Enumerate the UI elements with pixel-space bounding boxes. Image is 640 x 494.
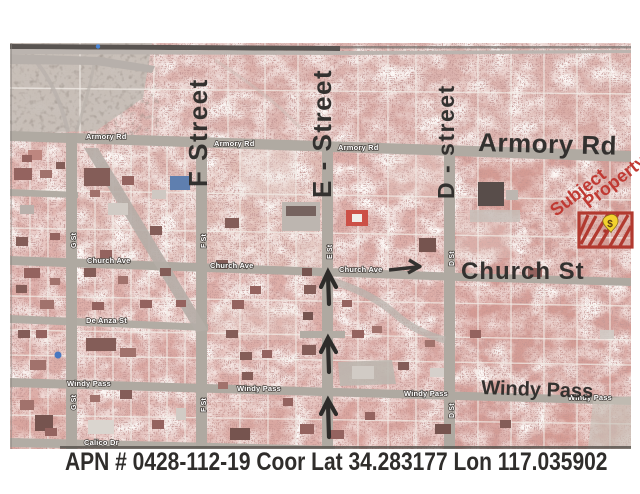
svg-text:D St: D St xyxy=(449,403,456,418)
svg-text:Armory Rd: Armory Rd xyxy=(86,132,127,141)
svg-text:Armory Rd: Armory Rd xyxy=(214,139,255,148)
svg-text:$: $ xyxy=(607,219,613,230)
svg-text:Armory Rd: Armory Rd xyxy=(338,143,379,152)
svg-text:F Street: F Street xyxy=(183,78,213,187)
svg-text:Church St: Church St xyxy=(461,258,585,285)
svg-text:Armory Rd: Armory Rd xyxy=(478,127,618,161)
svg-text:E - Street: E - Street xyxy=(307,69,337,198)
svg-text:Church Ave: Church Ave xyxy=(87,256,131,265)
svg-text:D - street: D - street xyxy=(433,84,459,199)
svg-text:De Anza St: De Anza St xyxy=(86,316,127,325)
svg-text:G St: G St xyxy=(71,232,78,248)
svg-text:APN # 0428-112-19 Coor Lat 3: APN # 0428-112-19 Coor Lat 34.283177 Lon… xyxy=(65,447,607,475)
svg-text:Windy Pass: Windy Pass xyxy=(404,389,448,398)
svg-text:Windy Pass: Windy Pass xyxy=(67,379,111,388)
svg-text:F St: F St xyxy=(201,398,208,412)
svg-text:Windy Pass: Windy Pass xyxy=(481,377,594,403)
svg-text:G St: G St xyxy=(71,394,78,410)
svg-text:D St: D St xyxy=(449,251,456,266)
svg-text:Church Ave: Church Ave xyxy=(339,265,383,274)
svg-text:Church Ave: Church Ave xyxy=(210,261,254,270)
svg-text:F St: F St xyxy=(201,234,208,248)
svg-text:Calico Dr: Calico Dr xyxy=(84,438,119,447)
svg-text:Windy Pass: Windy Pass xyxy=(237,384,281,393)
svg-text:E St: E St xyxy=(327,244,334,259)
